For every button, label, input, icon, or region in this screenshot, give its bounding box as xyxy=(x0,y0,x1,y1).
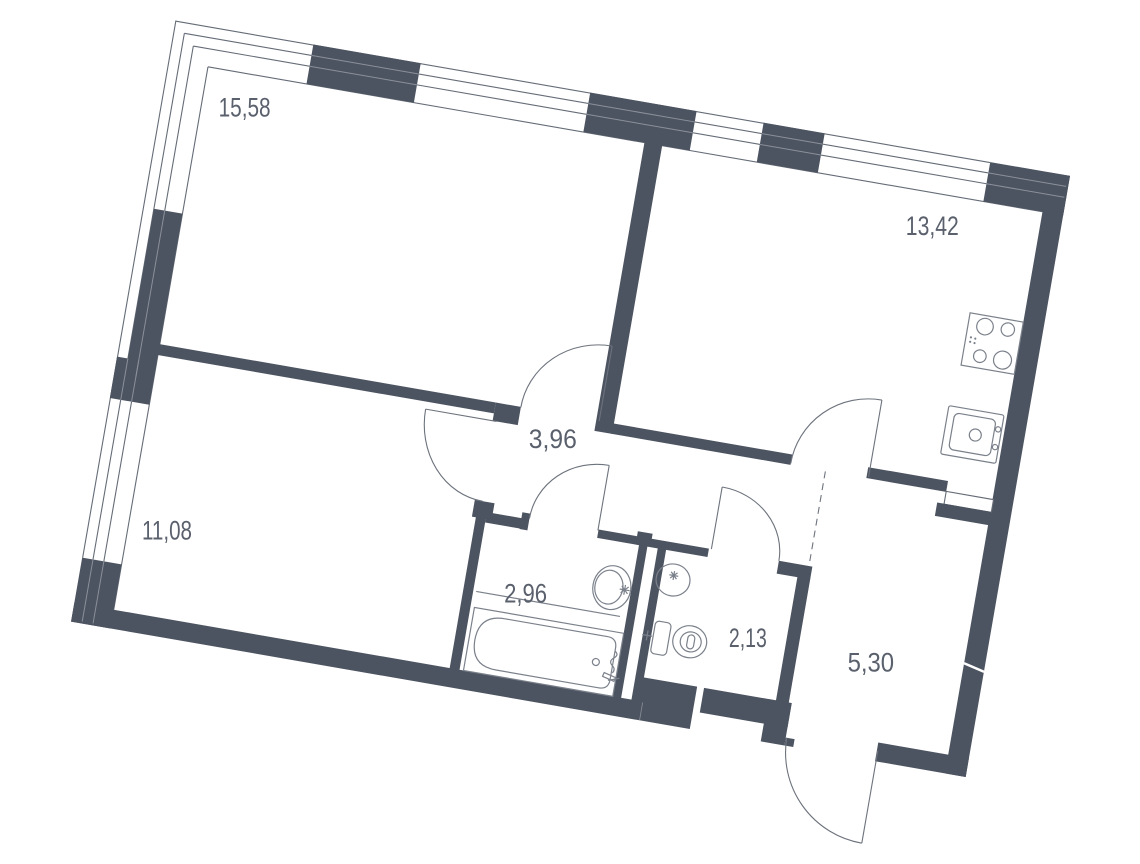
svg-text:11,08: 11,08 xyxy=(142,516,192,546)
svg-text:2,96: 2,96 xyxy=(504,578,547,608)
svg-text:15,58: 15,58 xyxy=(219,92,271,122)
svg-text:2,13: 2,13 xyxy=(729,623,767,653)
svg-text:5,30: 5,30 xyxy=(848,648,895,678)
svg-text:13,42: 13,42 xyxy=(906,211,959,241)
svg-text:3,96: 3,96 xyxy=(529,424,577,454)
